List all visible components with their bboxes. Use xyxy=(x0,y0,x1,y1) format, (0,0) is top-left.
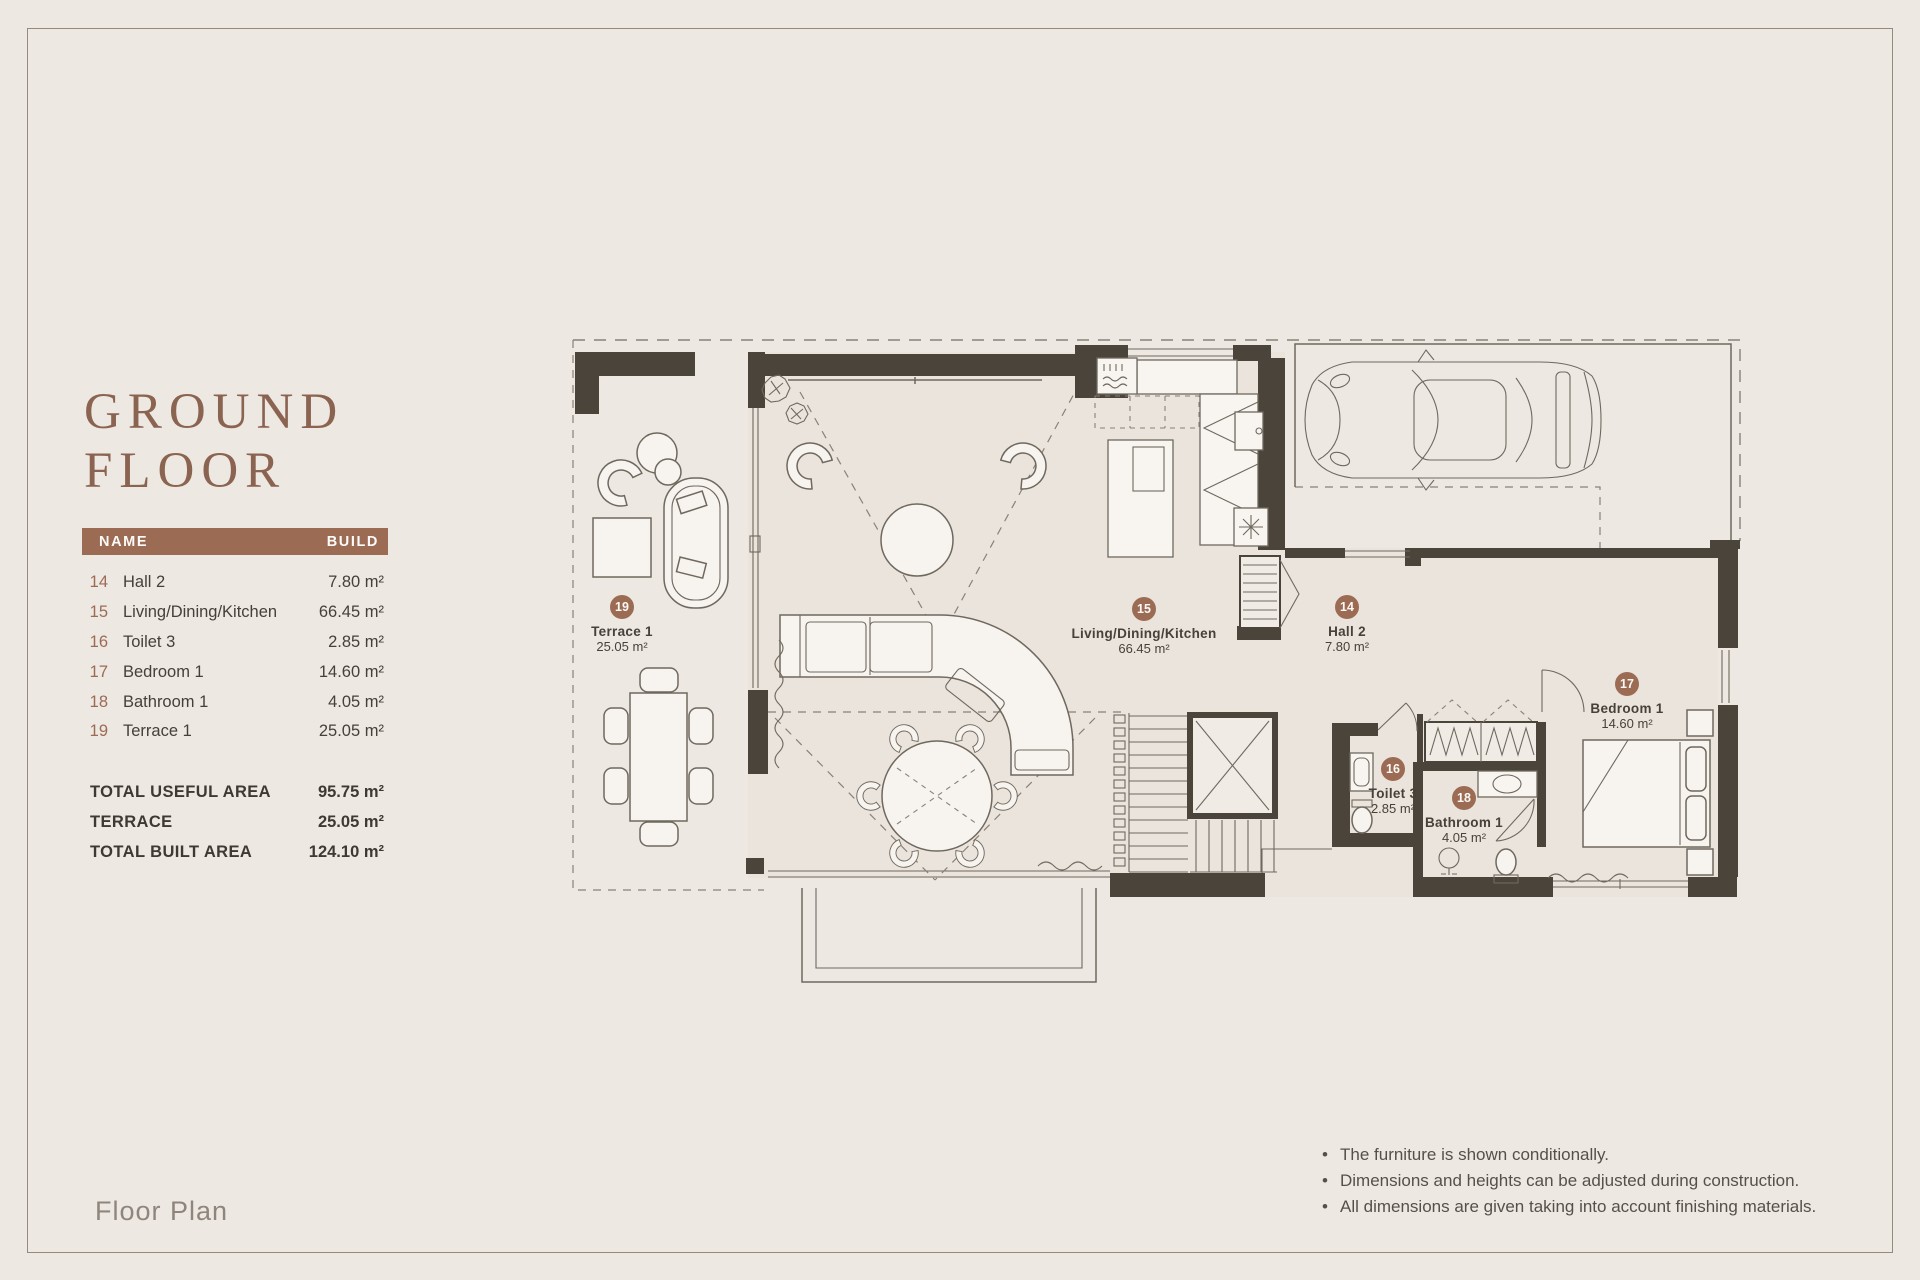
car xyxy=(1305,350,1601,490)
room-label-terrace: 19 Terrace 1 25.05 m² xyxy=(507,595,737,655)
total-label: TOTAL USEFUL AREA xyxy=(82,783,318,802)
column-build: BUILD xyxy=(327,534,388,550)
row-number: 18 xyxy=(82,693,108,712)
row-number: 14 xyxy=(82,573,108,592)
room-badge: 18 xyxy=(1452,786,1476,810)
note-item: All dimensions are given taking into acc… xyxy=(1322,1194,1882,1220)
notes-list: The furniture is shown conditionally. Di… xyxy=(1322,1142,1882,1220)
total-value: 95.75 m² xyxy=(318,783,388,802)
kitchen-sink-unit xyxy=(1097,358,1137,394)
table-row: 15 Living/Dining/Kitchen 66.45 m² xyxy=(82,598,388,628)
room-badge: 15 xyxy=(1132,597,1156,621)
row-name: Living/Dining/Kitchen xyxy=(123,603,319,622)
table-row: 14 Hall 2 7.80 m² xyxy=(82,568,388,598)
porch-steps xyxy=(802,888,1096,982)
room-label-hall: 14 Hall 2 7.80 m² xyxy=(1232,595,1462,655)
totals-block: TOTAL USEFUL AREA 95.75 m² TERRACE 25.05… xyxy=(82,778,388,867)
row-number: 15 xyxy=(82,603,108,622)
total-value: 124.10 m² xyxy=(309,843,388,862)
fridge xyxy=(1235,412,1263,450)
column-name: NAME xyxy=(82,534,148,550)
row-area: 7.80 m² xyxy=(328,573,388,592)
total-row: TERRACE 25.05 m² xyxy=(82,808,388,838)
row-area: 4.05 m² xyxy=(328,693,388,712)
total-value: 25.05 m² xyxy=(318,813,388,832)
table-header: NAME BUILD xyxy=(82,528,388,555)
room-badge: 17 xyxy=(1615,672,1639,696)
row-name: Toilet 3 xyxy=(123,633,328,652)
area-table: 14 Hall 2 7.80 m² 15 Living/Dining/Kitch… xyxy=(82,568,388,747)
room-badge: 14 xyxy=(1335,595,1359,619)
parking-outline xyxy=(1295,344,1731,541)
note-item: The furniture is shown conditionally. xyxy=(1322,1142,1882,1168)
table-row: 19 Terrace 1 25.05 m² xyxy=(82,717,388,747)
row-name: Hall 2 xyxy=(123,573,328,592)
total-label: TOTAL BUILT AREA xyxy=(82,843,309,862)
row-number: 17 xyxy=(82,663,108,682)
room-badge: 16 xyxy=(1381,757,1405,781)
row-area: 25.05 m² xyxy=(319,722,388,741)
room-badge: 19 xyxy=(610,595,634,619)
row-name: Bathroom 1 xyxy=(123,693,328,712)
room-label-living: 15 Living/Dining/Kitchen 66.45 m² xyxy=(1029,597,1259,657)
table-row: 17 Bedroom 1 14.60 m² xyxy=(82,657,388,687)
kitchen-island xyxy=(1108,440,1173,557)
title-line-2: FLOOR xyxy=(84,443,286,499)
floor-plan-caption: Floor Plan xyxy=(95,1196,228,1227)
row-name: Terrace 1 xyxy=(123,722,319,741)
nightstand xyxy=(1687,849,1713,875)
total-row: TOTAL BUILT AREA 124.10 m² xyxy=(82,838,388,868)
room-label-bathroom: 18 Bathroom 1 4.05 m² xyxy=(1349,786,1579,846)
row-name: Bedroom 1 xyxy=(123,663,319,682)
title-line-1: GROUND xyxy=(84,384,344,440)
table-row: 16 Toilet 3 2.85 m² xyxy=(82,628,388,658)
table-row: 18 Bathroom 1 4.05 m² xyxy=(82,687,388,717)
page-title: GROUND FLOOR xyxy=(84,383,404,501)
note-item: Dimensions and heights can be adjusted d… xyxy=(1322,1168,1882,1194)
row-area: 2.85 m² xyxy=(328,633,388,652)
row-area: 14.60 m² xyxy=(319,663,388,682)
row-area: 66.45 m² xyxy=(319,603,388,622)
row-number: 16 xyxy=(82,633,108,652)
total-row: TOTAL USEFUL AREA 95.75 m² xyxy=(82,778,388,808)
total-label: TERRACE xyxy=(82,813,318,832)
row-number: 19 xyxy=(82,722,108,741)
room-label-bedroom: 17 Bedroom 1 14.60 m² xyxy=(1512,672,1742,732)
elevator-shaft xyxy=(1190,715,1275,816)
coffee-table xyxy=(881,504,953,576)
